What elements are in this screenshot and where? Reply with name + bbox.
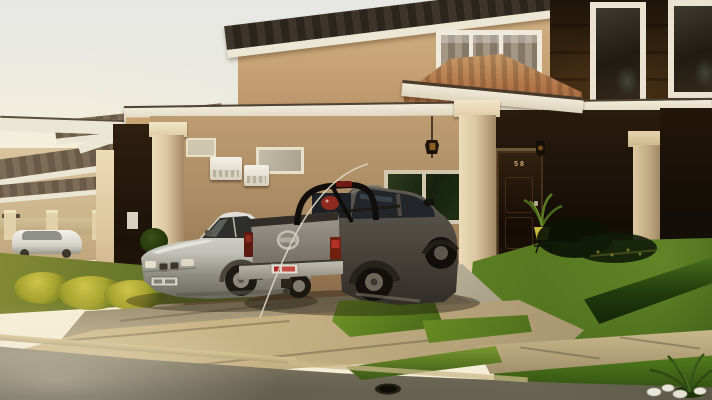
foreground-overlay [0, 0, 712, 400]
curb-drain [375, 384, 401, 395]
wall-sconce [536, 141, 545, 157]
shadowed-shrub [537, 218, 660, 263]
sedan-headlight [181, 259, 194, 266]
sedan-mirror [205, 230, 212, 235]
truck-side-windows [352, 189, 435, 219]
sedan-headlight [145, 261, 156, 268]
rear-window-sticker [321, 196, 339, 210]
hanging-lantern [425, 116, 439, 158]
house-exterior-photo: 58 [0, 0, 712, 400]
